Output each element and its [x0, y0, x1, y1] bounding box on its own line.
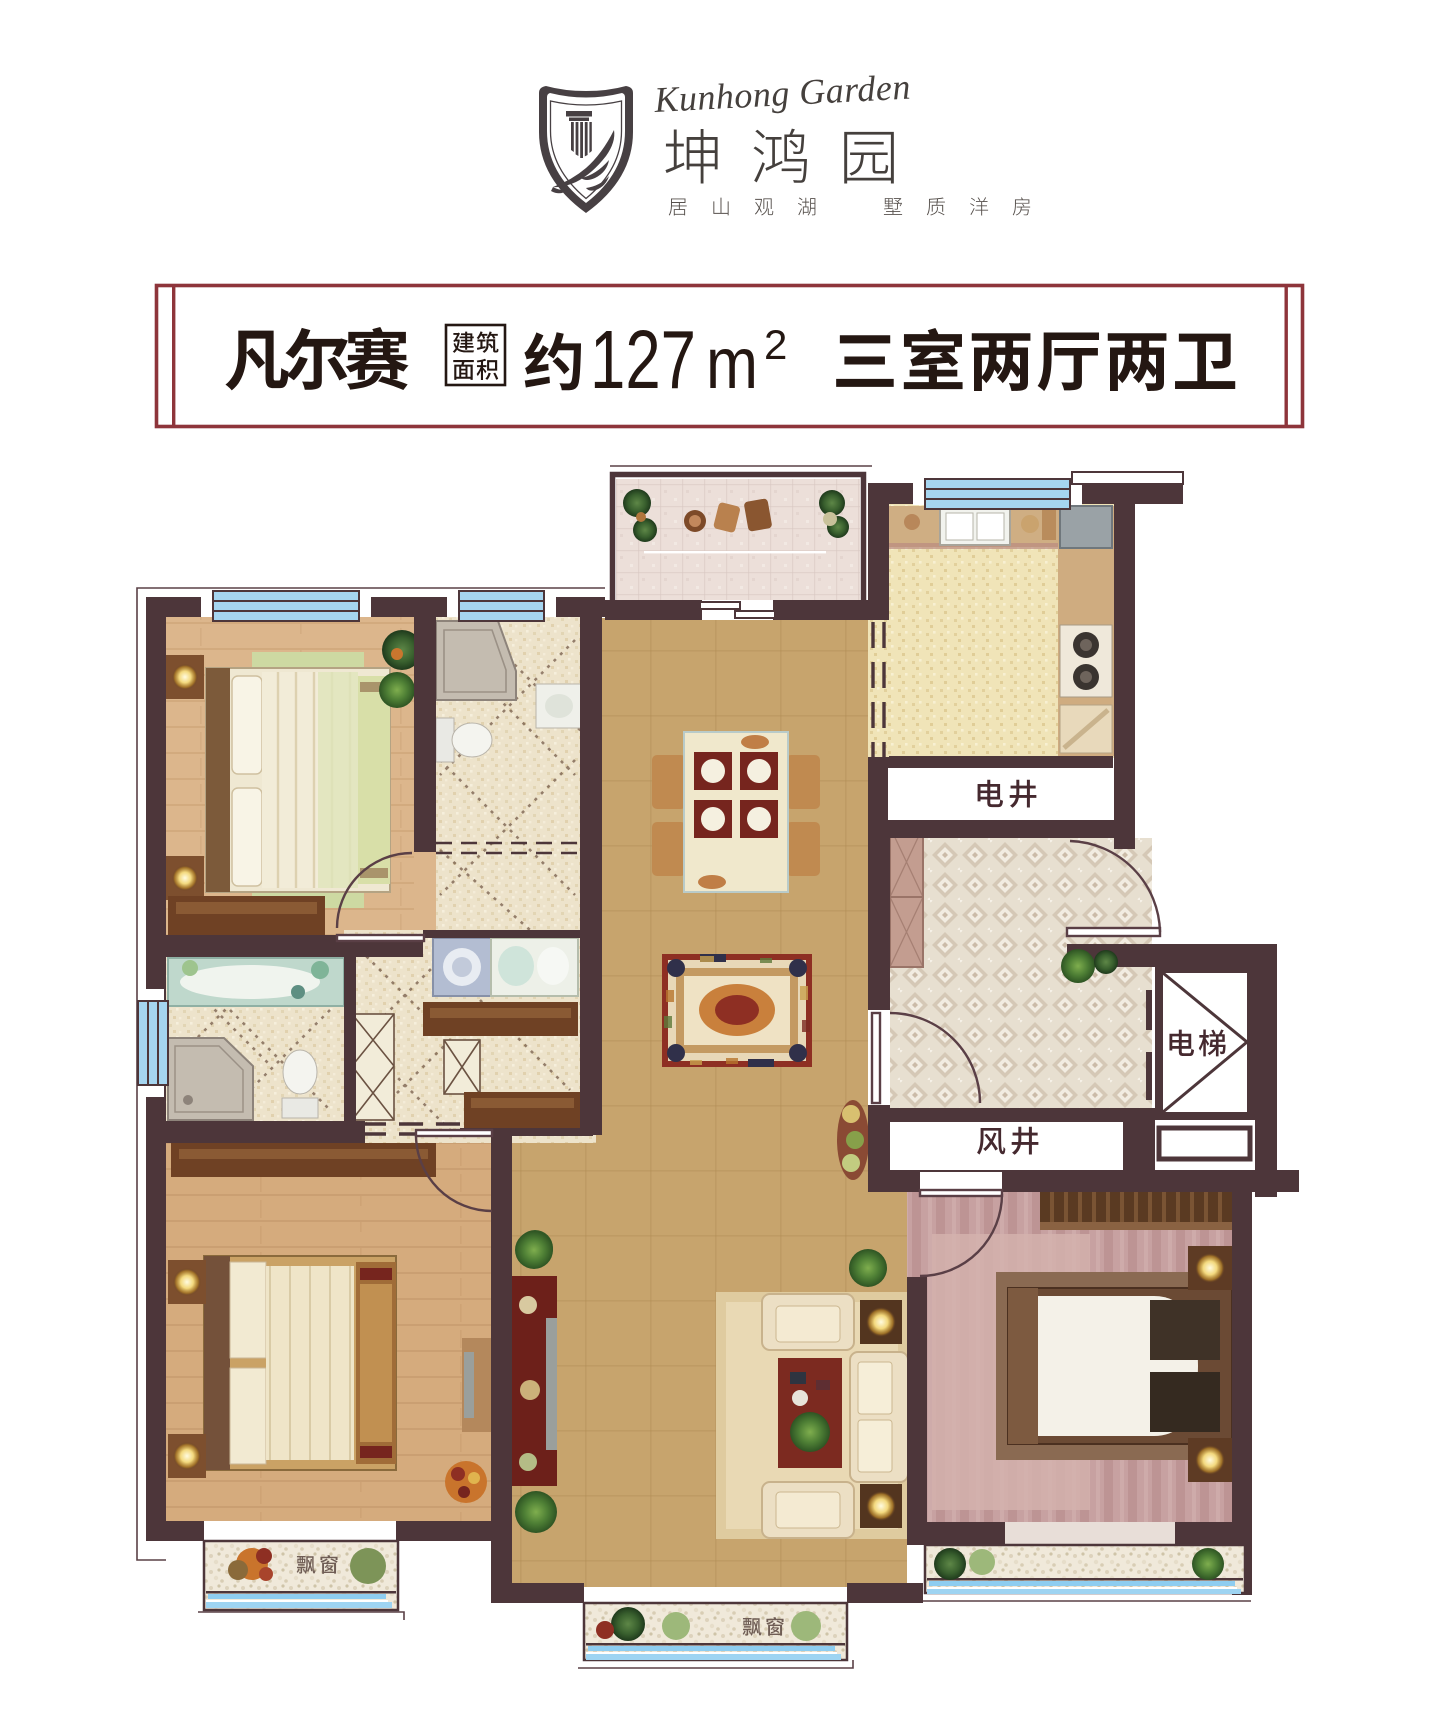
- svg-text:m: m: [706, 324, 758, 404]
- svg-text:2: 2: [764, 321, 787, 368]
- svg-text:Kunhong Garden: Kunhong Garden: [652, 67, 911, 120]
- svg-text:127: 127: [590, 313, 696, 406]
